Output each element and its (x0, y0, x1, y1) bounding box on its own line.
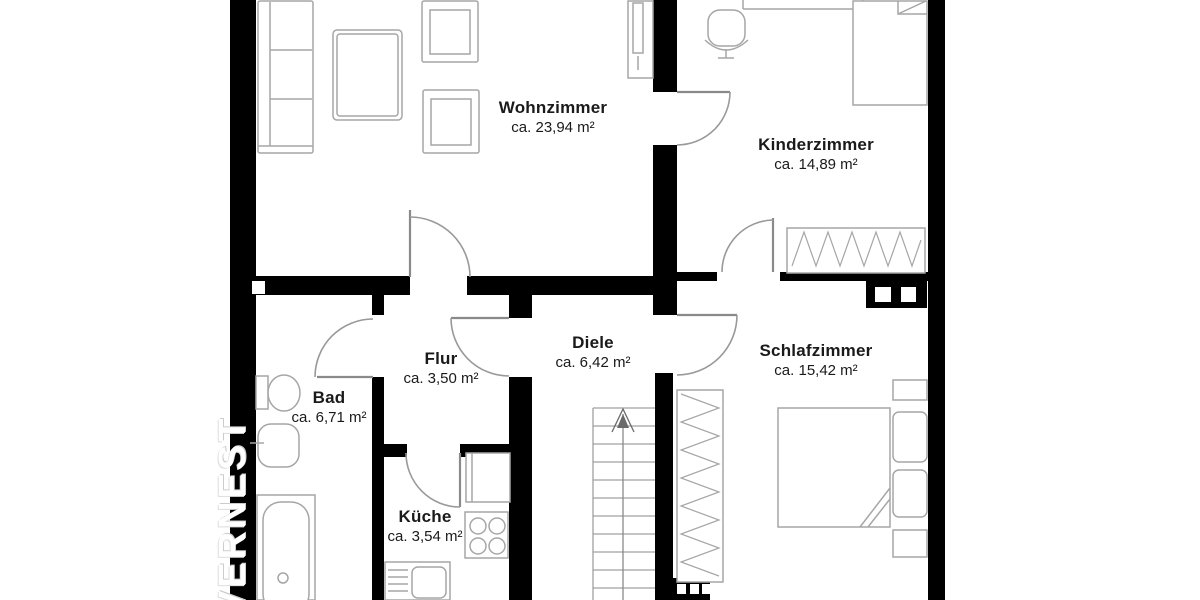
door-kueche (406, 453, 460, 507)
coffee-table (333, 30, 402, 120)
vent-opening-2 (690, 584, 699, 594)
wall-divider-top-a (653, 0, 677, 92)
floorplan-drawing (0, 0, 1200, 600)
room-label-kueche: Küche ca. 3,54 m² (387, 507, 462, 545)
single-bed (853, 1, 927, 105)
stove (465, 512, 508, 558)
desk (743, 0, 863, 9)
room-area: ca. 3,54 m² (387, 528, 462, 545)
room-name: Schlafzimmer (760, 341, 873, 360)
wall-kinder-bottom-a (677, 272, 717, 281)
vent-opening-3 (702, 584, 710, 594)
floorplan: Wohnzimmer ca. 23,94 m² Kinderzimmer ca.… (0, 0, 1200, 600)
chimney-flue-2 (901, 287, 916, 302)
door-kinderzimmer-bottom (722, 218, 773, 272)
door-bad (315, 319, 373, 377)
wardrobe-schlafzimmer (677, 390, 723, 582)
room-area: ca. 23,94 m² (499, 119, 607, 136)
wall-bad-stub (372, 295, 384, 315)
wall-flur-diele-lower (509, 377, 532, 600)
room-name: Kinderzimmer (758, 135, 874, 154)
kitchen-counter (466, 453, 510, 502)
floor-lamp (633, 3, 643, 53)
room-area: ca. 6,42 m² (555, 354, 630, 371)
watermark-logo: VERNEST (212, 416, 255, 600)
pillow-2 (893, 470, 927, 517)
room-name: Wohnzimmer (499, 98, 607, 117)
door-wohnzimmer (410, 210, 470, 277)
vent-opening-1 (677, 584, 686, 594)
chimney-flue-1 (875, 287, 891, 302)
room-label-flur: Flur ca. 3,50 m² (403, 349, 478, 387)
room-name: Diele (555, 333, 630, 352)
door-schlafzimmer (677, 315, 737, 375)
room-area: ca. 3,50 m² (403, 370, 478, 387)
room-name: Bad (291, 388, 366, 407)
wall-divider-top-b (653, 145, 677, 296)
wall-flur-diele-stub (509, 295, 532, 318)
door-kinderzimmer-top (677, 92, 730, 145)
room-label-wohnzimmer: Wohnzimmer ca. 23,94 m² (499, 98, 607, 136)
wall-middle-right (467, 276, 677, 295)
room-label-kinderzimmer: Kinderzimmer ca. 14,89 m² (758, 135, 874, 173)
armchair-2 (423, 90, 479, 153)
wall-kueche-top-a (372, 444, 407, 457)
room-name: Küche (387, 507, 462, 526)
washbasin (250, 424, 299, 467)
wall-schlaf-stub (653, 295, 677, 315)
room-area: ca. 6,71 m² (291, 409, 366, 426)
room-name: Flur (403, 349, 478, 368)
nightstand-1 (893, 380, 927, 400)
furniture (250, 0, 927, 600)
stairs (593, 408, 655, 600)
wall-bad-lower (372, 377, 384, 600)
sofa (258, 1, 313, 153)
room-label-schlafzimmer: Schlafzimmer ca. 15,42 m² (760, 341, 873, 379)
wall-outer-right (928, 0, 945, 600)
armchair-1 (422, 1, 478, 62)
room-area: ca. 14,89 m² (758, 156, 874, 173)
bathtub (257, 495, 315, 600)
pillow-1 (893, 412, 927, 462)
wall-stairwell (655, 373, 673, 600)
room-label-diele: Diele ca. 6,42 m² (555, 333, 630, 371)
shelf-cabinet (628, 1, 653, 78)
nightstand-2 (893, 530, 927, 557)
wardrobe-kinderzimmer (787, 228, 925, 273)
room-area: ca. 15,42 m² (760, 362, 873, 379)
double-bed (778, 380, 927, 557)
kitchen-sink (385, 562, 450, 600)
desk-chair (705, 10, 748, 58)
room-label-bad: Bad ca. 6,71 m² (291, 388, 366, 426)
wall-notch (252, 281, 265, 294)
